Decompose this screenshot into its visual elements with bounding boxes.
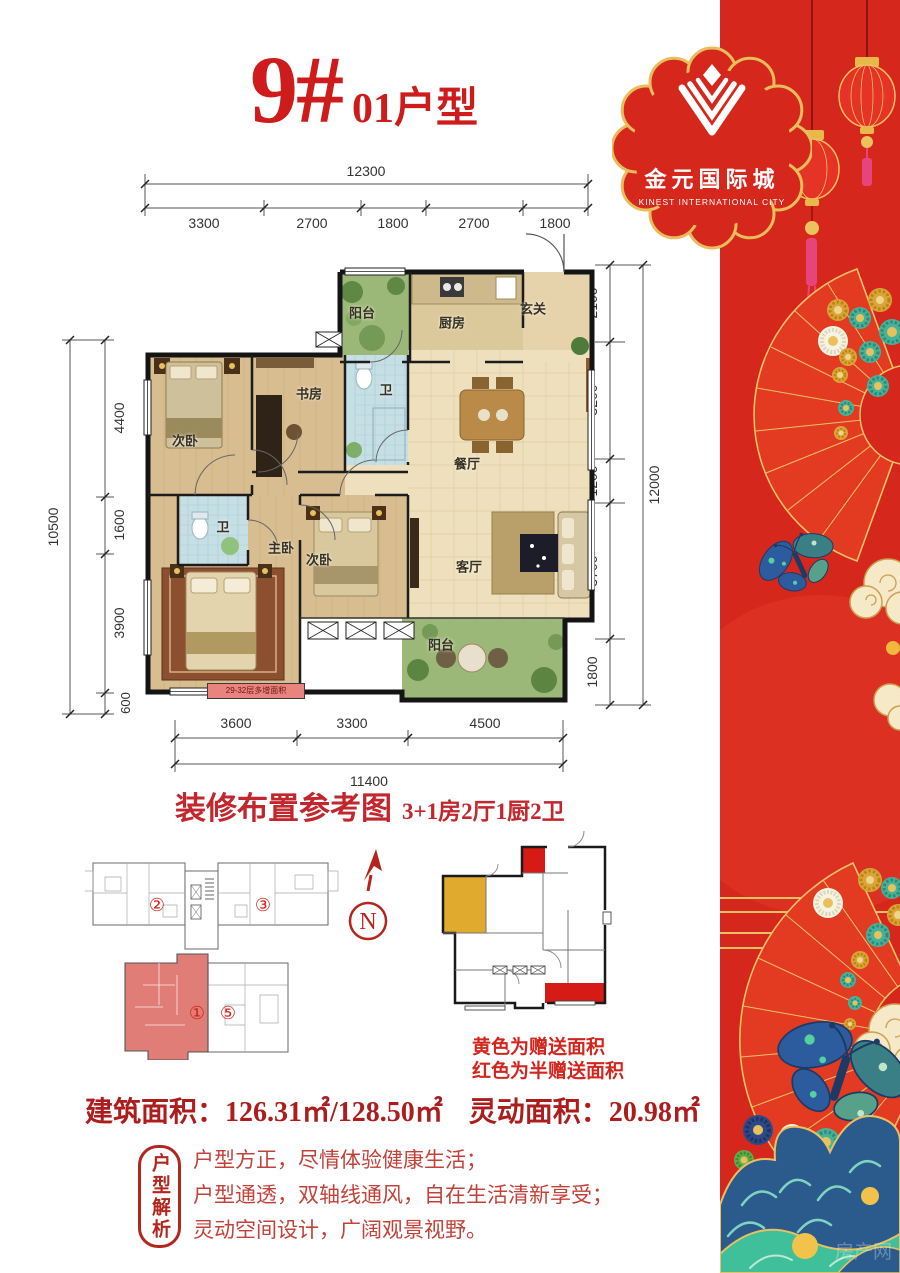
svg-text:3900: 3900: [111, 607, 127, 638]
room-label-bath-top: 卫: [379, 380, 392, 399]
compass-icon: N: [330, 845, 420, 960]
unit-number: ③: [255, 895, 271, 915]
unit-number: ②: [149, 895, 165, 915]
svg-text:3300: 3300: [336, 715, 367, 731]
building-area-value: 126.31㎡/128.50㎡: [225, 1097, 443, 1128]
poster: 房产网 金元国际城 KINEST INTERNATIONAL CITY 9# 0…: [0, 0, 900, 1273]
flex-area-label: 灵动面积：: [469, 1097, 609, 1128]
floor-note-strip: 29-32层多增面积: [207, 683, 305, 699]
gift-legend-red: 红色为半赠送面积: [472, 1060, 712, 1083]
room-label-entry: 玄关: [520, 299, 546, 318]
room-label-balcony-top: 阳台: [349, 303, 375, 322]
unit-type-label: 01户型: [352, 74, 478, 135]
svg-text:1600: 1600: [111, 509, 127, 540]
page-title: 9# 01户型: [250, 42, 478, 138]
analysis-line: 户型通透，双轴线通风，自在生活清新享受；: [193, 1178, 663, 1213]
floorplan: [140, 220, 595, 715]
gift-red-area: [522, 847, 545, 873]
svg-text:3600: 3600: [220, 715, 251, 731]
room-label-bedroom-s: 次卧: [306, 550, 332, 569]
building-number: 9#: [250, 42, 342, 138]
dimension-chain-left: 10500 4400 1600 3900 600: [48, 325, 143, 725]
room-label-balcony-bottom: 阳台: [428, 635, 454, 654]
gift-red-area: [545, 983, 605, 1003]
logo-name-en: KINEST INTERNATIONAL CITY: [639, 197, 786, 207]
svg-text:10500: 10500: [48, 507, 61, 546]
svg-text:N: N: [359, 909, 376, 935]
svg-text:4400: 4400: [111, 402, 127, 433]
glow-circle: [720, 595, 900, 915]
analysis-line: 灵动空间设计，广阔观景视野。: [193, 1213, 663, 1248]
room-label-living: 客厅: [456, 557, 482, 576]
north-arrow-icon: [364, 849, 382, 881]
flex-area-value: 20.98㎡: [609, 1097, 700, 1128]
room-label-bath-mid: 卫: [216, 517, 229, 536]
gift-yellow-area: [443, 876, 486, 933]
unit-number: ⑤: [220, 1003, 236, 1023]
room-label-master: 主卧: [268, 538, 294, 557]
dim-total-top: 12300: [347, 163, 386, 179]
caption-title: 装修布置参考图: [175, 783, 392, 828]
building-area-label: 建筑面积：: [85, 1097, 225, 1128]
dimension-chain-right: 2100 3200 1200 3700 1800 12000: [585, 255, 685, 715]
area-summary: 建筑面积：126.31㎡/128.50㎡灵动面积：20.98㎡: [85, 1090, 725, 1130]
room-label-bedroom-nw: 次卧: [172, 431, 198, 450]
analysis-text: 户型方正，尽情体验健康生活； 户型通透，双轴线通风，自在生活清新享受； 灵动空间…: [193, 1143, 663, 1248]
analysis-line: 户型方正，尽情体验健康生活；: [193, 1143, 663, 1178]
svg-text:600: 600: [118, 692, 133, 714]
svg-text:4500: 4500: [469, 715, 500, 731]
room-label-kitchen: 厨房: [439, 313, 465, 332]
dim-total-right: 12000: [646, 465, 662, 504]
gift-legend-yellow: 黄色为赠送面积: [472, 1036, 712, 1059]
gift-area-plan: [435, 820, 705, 1035]
analysis-badge: 户型解析: [138, 1145, 181, 1248]
logo-badge: 金元国际城 KINEST INTERNATIONAL CITY: [612, 40, 812, 255]
room-label-study: 书房: [296, 384, 322, 403]
unit-number: ①: [189, 1003, 205, 1023]
watermark-text: 房产网: [835, 1241, 892, 1263]
logo-name-cn: 金元国际城: [643, 167, 779, 192]
room-label-dining: 餐厅: [454, 454, 480, 473]
entry-door-arc: [526, 234, 564, 272]
